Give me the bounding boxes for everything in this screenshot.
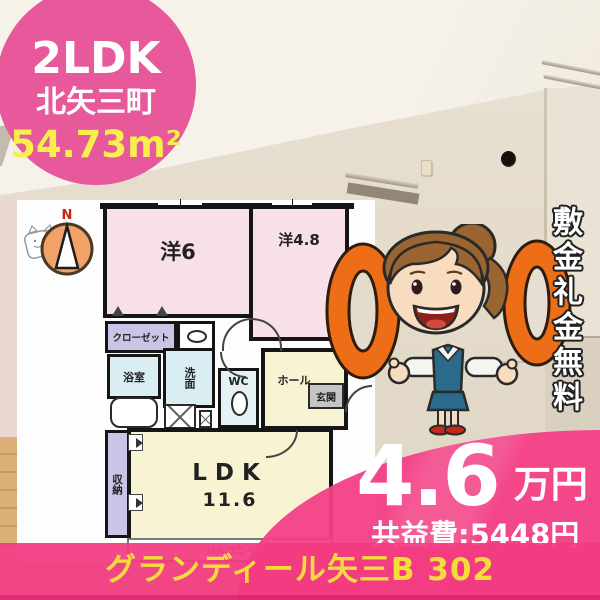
room-bath: 浴室 (107, 354, 161, 399)
wall-hole-icon (501, 151, 516, 167)
washer-icon (164, 404, 196, 429)
room-storage-label: 収納 (110, 474, 125, 495)
room-western6-label: 洋6 (160, 236, 196, 266)
badge-area: 54.73m² (0, 126, 196, 163)
toilet-icon (231, 391, 248, 416)
room-closet-label: クローゼット (112, 330, 169, 344)
room-ldk-label: LDK (192, 460, 268, 486)
door-marker-icon (128, 494, 143, 511)
room-bath-label: 浴室 (123, 369, 145, 385)
badge-location: 北矢三町 (0, 88, 196, 118)
room-washroom: 洗面 (163, 348, 215, 408)
photo-left-wall (0, 195, 17, 437)
vent-marker-icon (156, 306, 168, 316)
footer-building-name: グランディール矢三B 302 (0, 543, 600, 595)
info-badge: 2LDK 北矢三町 54.73m² (0, 0, 196, 185)
compass-north-label: N (62, 208, 73, 223)
sink-icon (187, 330, 207, 343)
photo-wood-floor (0, 437, 17, 547)
small-box-icon (199, 410, 212, 428)
price-unit: 万円 (514, 454, 588, 512)
room-western6: 洋6 (103, 205, 253, 318)
ad-canvas: N 洋6 洋4.8 クローゼット 浴室 洗面 WC ホール (0, 0, 600, 600)
room-storage: 収納 (105, 430, 130, 538)
promo-vertical-text: 敷金礼金無料 (549, 206, 579, 416)
footer-bar: グランディール矢三B 302 (0, 543, 600, 600)
price-amount: 4.6 (356, 441, 499, 512)
vent-marker-icon (112, 306, 124, 316)
room-entrance-label: 玄関 (316, 389, 336, 404)
mascot-character (378, 224, 530, 436)
compass-icon: N (20, 206, 104, 280)
room-ldk-size: 11.6 (203, 489, 258, 511)
light-switch-icon (421, 160, 432, 176)
door-marker-icon (128, 434, 143, 451)
room-western48-label: 洋4.8 (278, 229, 320, 250)
room-washroom-label: 洗面 (181, 367, 197, 389)
bathtub-icon (110, 397, 158, 428)
price-line: 4.6 万円 (356, 441, 588, 512)
badge-layout-type: 2LDK (0, 37, 196, 81)
